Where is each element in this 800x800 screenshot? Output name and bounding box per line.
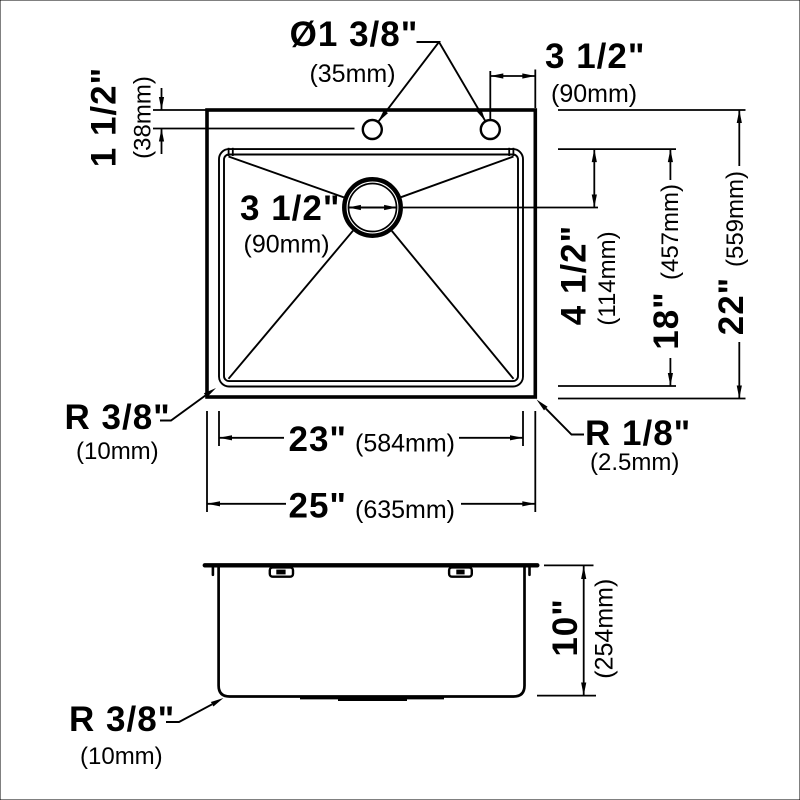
svg-text:22": 22" [712,277,751,336]
svg-text:R 3/8": R 3/8" [65,398,171,437]
svg-text:(559mm): (559mm) [722,171,749,267]
svg-text:(38mm): (38mm) [130,76,157,159]
svg-text:(10mm): (10mm) [76,438,159,465]
svg-text:(584mm): (584mm) [355,430,455,458]
svg-text:(114mm): (114mm) [594,231,621,325]
svg-text:(254mm): (254mm) [591,579,619,679]
svg-text:Ø1 3/8": Ø1 3/8" [290,15,419,54]
svg-text:R 1/8": R 1/8" [585,414,691,453]
svg-text:3 1/2": 3 1/2" [240,189,340,228]
svg-text:(90mm): (90mm) [551,80,637,108]
svg-text:3 1/2": 3 1/2" [545,37,645,76]
svg-text:(35mm): (35mm) [309,60,395,88]
svg-text:(457mm): (457mm) [657,184,684,280]
svg-text:25": 25" [289,487,348,526]
svg-text:10": 10" [546,598,585,657]
svg-text:23": 23" [289,420,348,459]
svg-text:4 1/2": 4 1/2" [555,225,594,325]
svg-text:(2.5mm): (2.5mm) [590,449,679,476]
svg-text:(10mm): (10mm) [80,743,163,770]
svg-text:R 3/8": R 3/8" [69,700,175,739]
svg-text:18": 18" [647,291,686,350]
svg-text:(90mm): (90mm) [244,231,330,259]
svg-text:1 1/2": 1 1/2" [85,67,124,167]
svg-text:(635mm): (635mm) [355,496,455,524]
